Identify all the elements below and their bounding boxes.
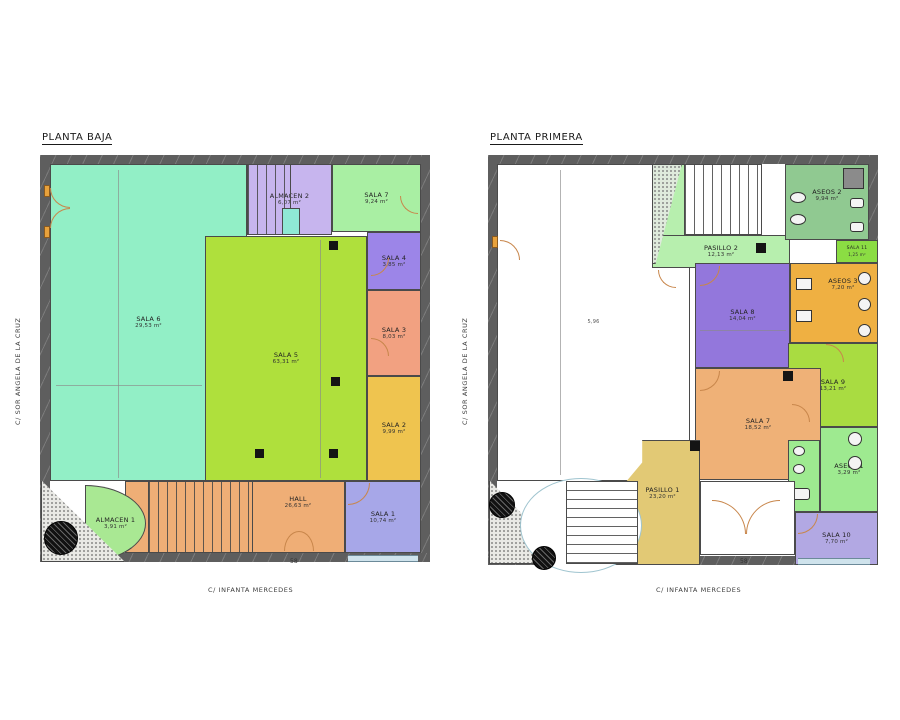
street-number: 58 [740,558,748,565]
door-sill [44,185,50,197]
column [532,546,556,570]
storefront-glazing [798,558,870,565]
room-label: SALA 9 13,21 m² [820,378,847,393]
room-label: SALA 5 63,31 m² [273,351,300,366]
wall [421,155,430,562]
column [329,241,338,250]
street-number: 58 [290,558,298,565]
column [783,371,793,381]
staircase [566,481,638,564]
dimension-text: 5,96 [588,319,600,325]
street-label-bottom: C/ INFANTA MERCEDES [208,586,293,594]
room-sala-11: SALA 11 1,25 m² [836,240,878,263]
room-label: SALA 6 29,53 m² [135,315,162,330]
sink-fixture [793,446,805,456]
sink-fixture [790,214,806,225]
door-sill [44,226,50,238]
column [690,441,700,451]
column [255,449,264,458]
room-sala-3: SALA 3 8,03 m² [367,290,421,376]
plan-title-primera: PLANTA PRIMERA [490,132,583,145]
room-label: SALA 7 18,52 m² [745,417,772,432]
street-label-bottom: C/ INFANTA MERCEDES [656,586,741,594]
room-label: SALA 7 9,24 m² [364,191,388,206]
shower-fixture [843,168,864,189]
room-label: SALA 11 1,25 m² [847,246,868,257]
door-sill [492,236,498,248]
sink-fixture [790,192,806,203]
column [756,243,766,253]
toilet-fixture [858,298,871,311]
room-sala-5: SALA 5 63,31 m² [205,236,367,481]
plan-title-baja: PLANTA BAJA [42,132,112,145]
dimension-line [320,240,321,478]
room-label: SALA 3 8,03 m² [382,326,406,341]
toilet-fixture [848,456,862,470]
dimension-line [560,170,561,475]
dimension-line [56,385,202,386]
room-label: PASILLO 1 23,20 m² [645,486,679,501]
room-label: ALMACEN 1 3,91 m² [96,516,136,531]
staircase [684,164,762,235]
sink-fixture [793,464,805,474]
room-sala-2: SALA 2 9,99 m² [367,376,421,481]
toilet-fixture [850,222,864,232]
column [489,492,515,518]
dimension-line [118,170,119,478]
staircase [148,481,253,553]
room-label: SALA 2 9,99 m² [382,421,406,436]
column [44,521,78,555]
room-label: SALA 1 10,74 m² [370,510,397,525]
column [331,377,340,386]
closet [282,208,300,235]
toilet-fixture [858,324,871,337]
room-label: SALA 8 14,04 m² [729,308,756,323]
wall [488,155,878,164]
floorplan-sheet: PLANTA BAJA SALA 6 29,53 m² SALA 5 63,31… [0,0,900,720]
toilet-fixture [850,198,864,208]
street-label-left: C/ SOR ANGELA DE LA CRUZ [461,295,469,425]
dimension-line [700,330,786,331]
room-label: PASILLO 2 12,13 m² [704,244,738,259]
room-label: ASEOS 3 7,20 m² [828,277,858,292]
sink-fixture [796,310,812,322]
room-label: ASEOS 2 9,94 m² [812,188,842,203]
street-label-left: C/ SOR ANGELA DE LA CRUZ [14,295,22,425]
storefront-glazing [348,555,418,562]
room-label: HALL 26,63 m² [258,495,338,510]
wall [40,155,430,164]
toilet-fixture [858,272,871,285]
sink-fixture [796,278,812,290]
room-label: SALA 10 7,70 m² [822,531,851,546]
toilet-fixture [848,432,862,446]
column [329,449,338,458]
